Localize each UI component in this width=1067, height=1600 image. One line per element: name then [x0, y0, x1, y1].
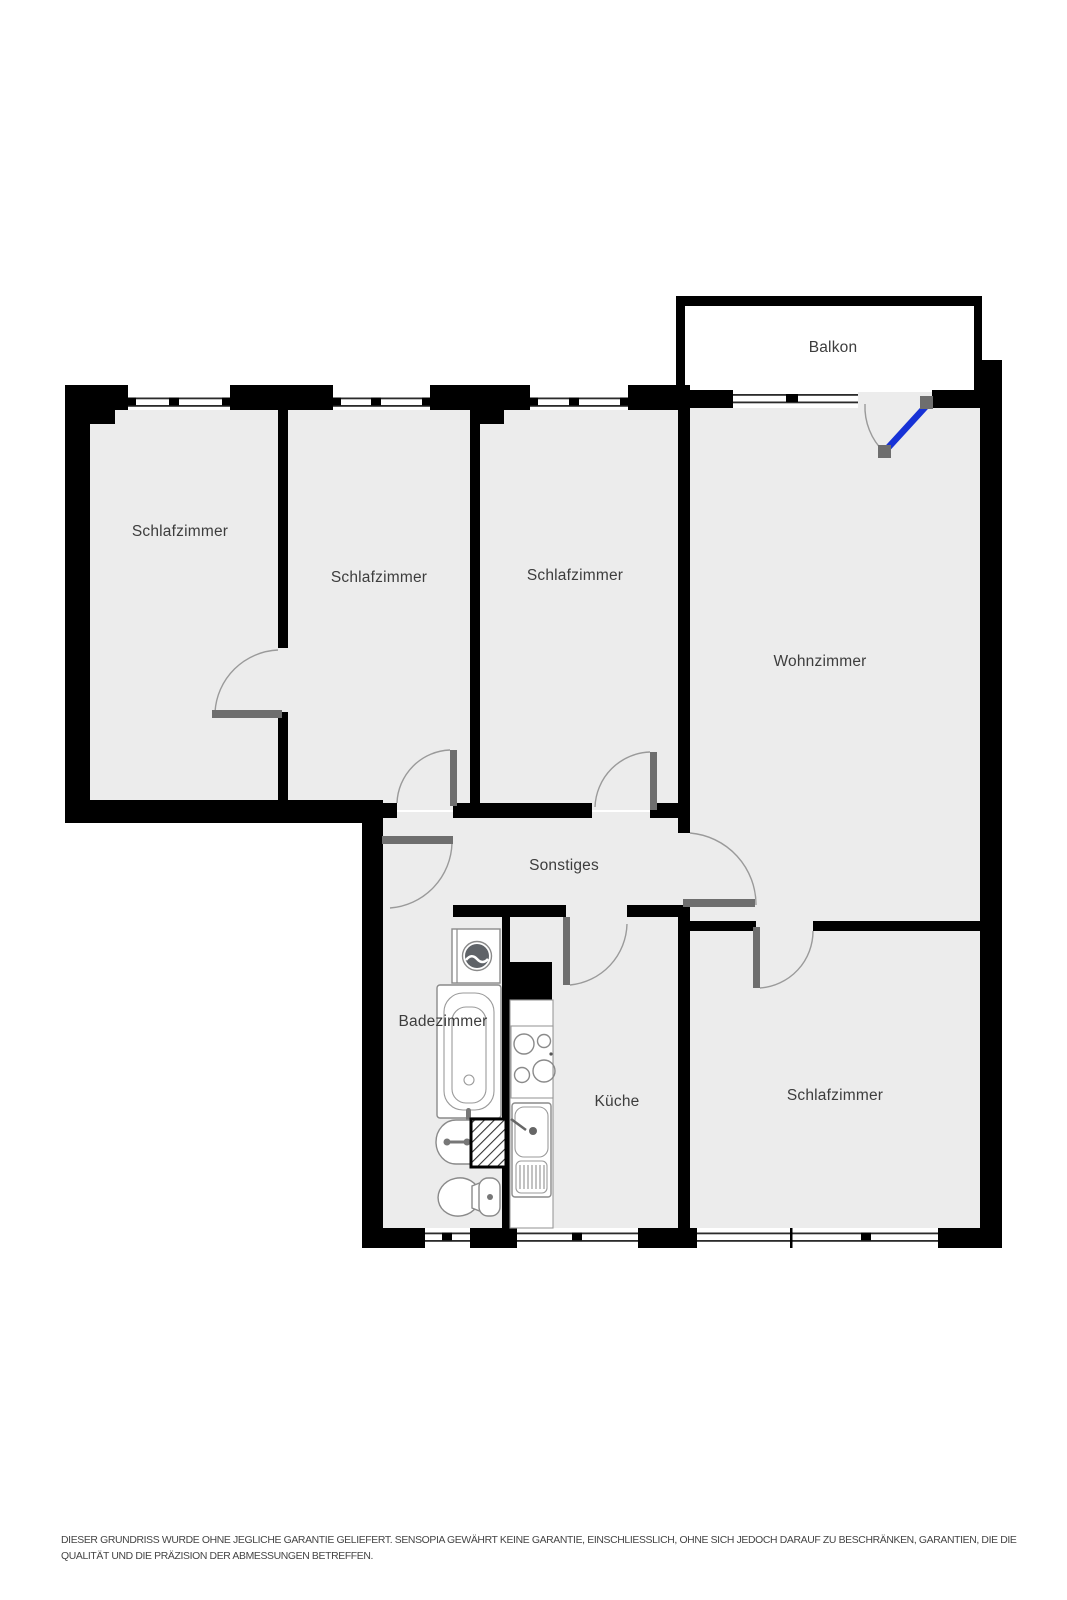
disclaimer-line-2: QUALITÄT UND DIE PRÄZISION DER ABMESSUNG…	[61, 1549, 373, 1565]
door-leaf	[382, 836, 453, 844]
door-leaf	[753, 927, 760, 988]
floor-plan-drawing	[0, 0, 1067, 1600]
bathtub	[437, 985, 501, 1132]
wall-pillar	[480, 410, 504, 424]
door-leaf	[563, 917, 570, 985]
wall-pillar	[90, 410, 115, 424]
room-label-schlafzimmer-1: Schlafzimmer	[132, 523, 228, 541]
room-label-schlafzimmer-3: Schlafzimmer	[527, 567, 623, 585]
kitchen-sink	[511, 1103, 551, 1197]
washing-machine	[452, 929, 500, 983]
disclaimer-line-1: DIESER GRUNDRISS WURDE OHNE JEGLICHE GAR…	[61, 1533, 1017, 1549]
door-leaf	[212, 710, 282, 718]
room-label-kueche: Küche	[595, 1093, 640, 1111]
balcony-wall-top	[676, 296, 982, 306]
door-leaf	[450, 750, 457, 806]
stove	[511, 1026, 555, 1098]
room-label-sonstiges: Sonstiges	[529, 857, 599, 875]
room-label-balkon: Balkon	[809, 339, 858, 357]
bathroom-sink	[436, 1120, 472, 1164]
shaft	[510, 962, 552, 1000]
window-mullion	[790, 1228, 793, 1248]
balcony-wall-right	[974, 296, 982, 390]
door-leaf	[683, 899, 755, 907]
room-label-badezimmer: Badezimmer	[399, 1013, 488, 1031]
floor-plan-page: Schlafzimmer Schlafzimmer Schlafzimmer W…	[0, 0, 1067, 1600]
duct-hatch	[471, 1119, 506, 1167]
room-label-schlafzimmer-2: Schlafzimmer	[331, 569, 427, 587]
room-label-wohnzimmer: Wohnzimmer	[773, 653, 866, 671]
balcony-wall-left	[676, 296, 685, 390]
kitchen-fixtures	[510, 1000, 555, 1228]
room-label-schlafzimmer-4: Schlafzimmer	[787, 1087, 883, 1105]
door-leaf	[650, 752, 657, 810]
